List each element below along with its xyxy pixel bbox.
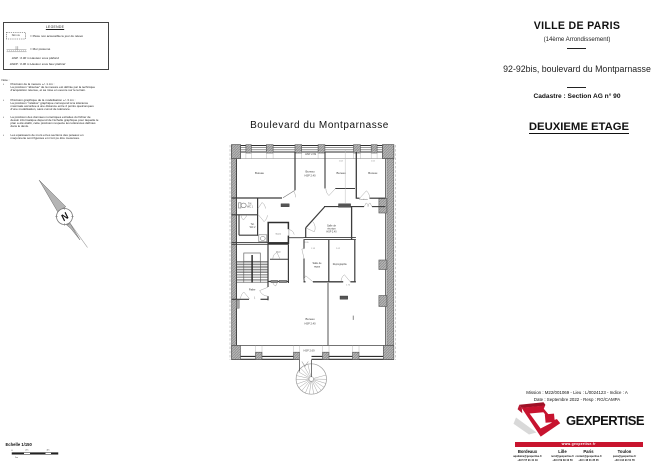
svg-text:1.62: 1.62 [371, 161, 376, 163]
svg-text:2m: 2m [25, 450, 28, 452]
svg-text:Tél.: Tél. [248, 204, 252, 206]
svg-text:repos: repos [314, 265, 321, 268]
svg-text:Boulevard du Montparnasse: Boulevard du Montparnasse [250, 120, 389, 131]
svg-text:1.70: 1.70 [346, 284, 351, 286]
svg-text:HSP 2.69: HSP 2.69 [303, 348, 315, 352]
svg-text:Echelle 1/150: Echelle 1/150 [6, 442, 33, 447]
svg-text:WC 2: WC 2 [250, 227, 256, 229]
svg-text:Bureau: Bureau [255, 171, 264, 175]
svg-text:Tél.: Tél. [251, 224, 255, 226]
svg-text:HSP 2.69: HSP 2.69 [305, 152, 317, 156]
svg-text:Bureau: Bureau [368, 171, 377, 175]
svg-text:Gaine: Gaine [276, 233, 282, 235]
svg-text:Bureau: Bureau [336, 171, 345, 175]
svg-text:HSP 2.40: HSP 2.40 [304, 173, 316, 177]
svg-text:2.05: 2.05 [304, 242, 309, 244]
svg-text:4m: 4m [46, 450, 49, 452]
svg-text:HSP 2.40: HSP 2.40 [326, 231, 337, 234]
svg-text:1m: 1m [15, 457, 18, 459]
svg-text:Baie: Baie [276, 252, 281, 254]
svg-text:1.93: 1.93 [311, 248, 316, 250]
svg-text:Penderie: Penderie [359, 198, 369, 201]
svg-text:1.64: 1.64 [339, 161, 344, 163]
svg-text:Palier: Palier [249, 288, 256, 292]
svg-text:Bureau: Bureau [305, 170, 314, 174]
svg-text:WC 1: WC 1 [247, 207, 253, 209]
svg-text:Bureau: Bureau [305, 317, 314, 321]
svg-text:Reprographie: Reprographie [333, 263, 348, 266]
svg-text:HSP 2.40: HSP 2.40 [304, 321, 316, 325]
svg-text:0: 0 [11, 450, 13, 452]
svg-text:2.02: 2.02 [336, 248, 341, 250]
